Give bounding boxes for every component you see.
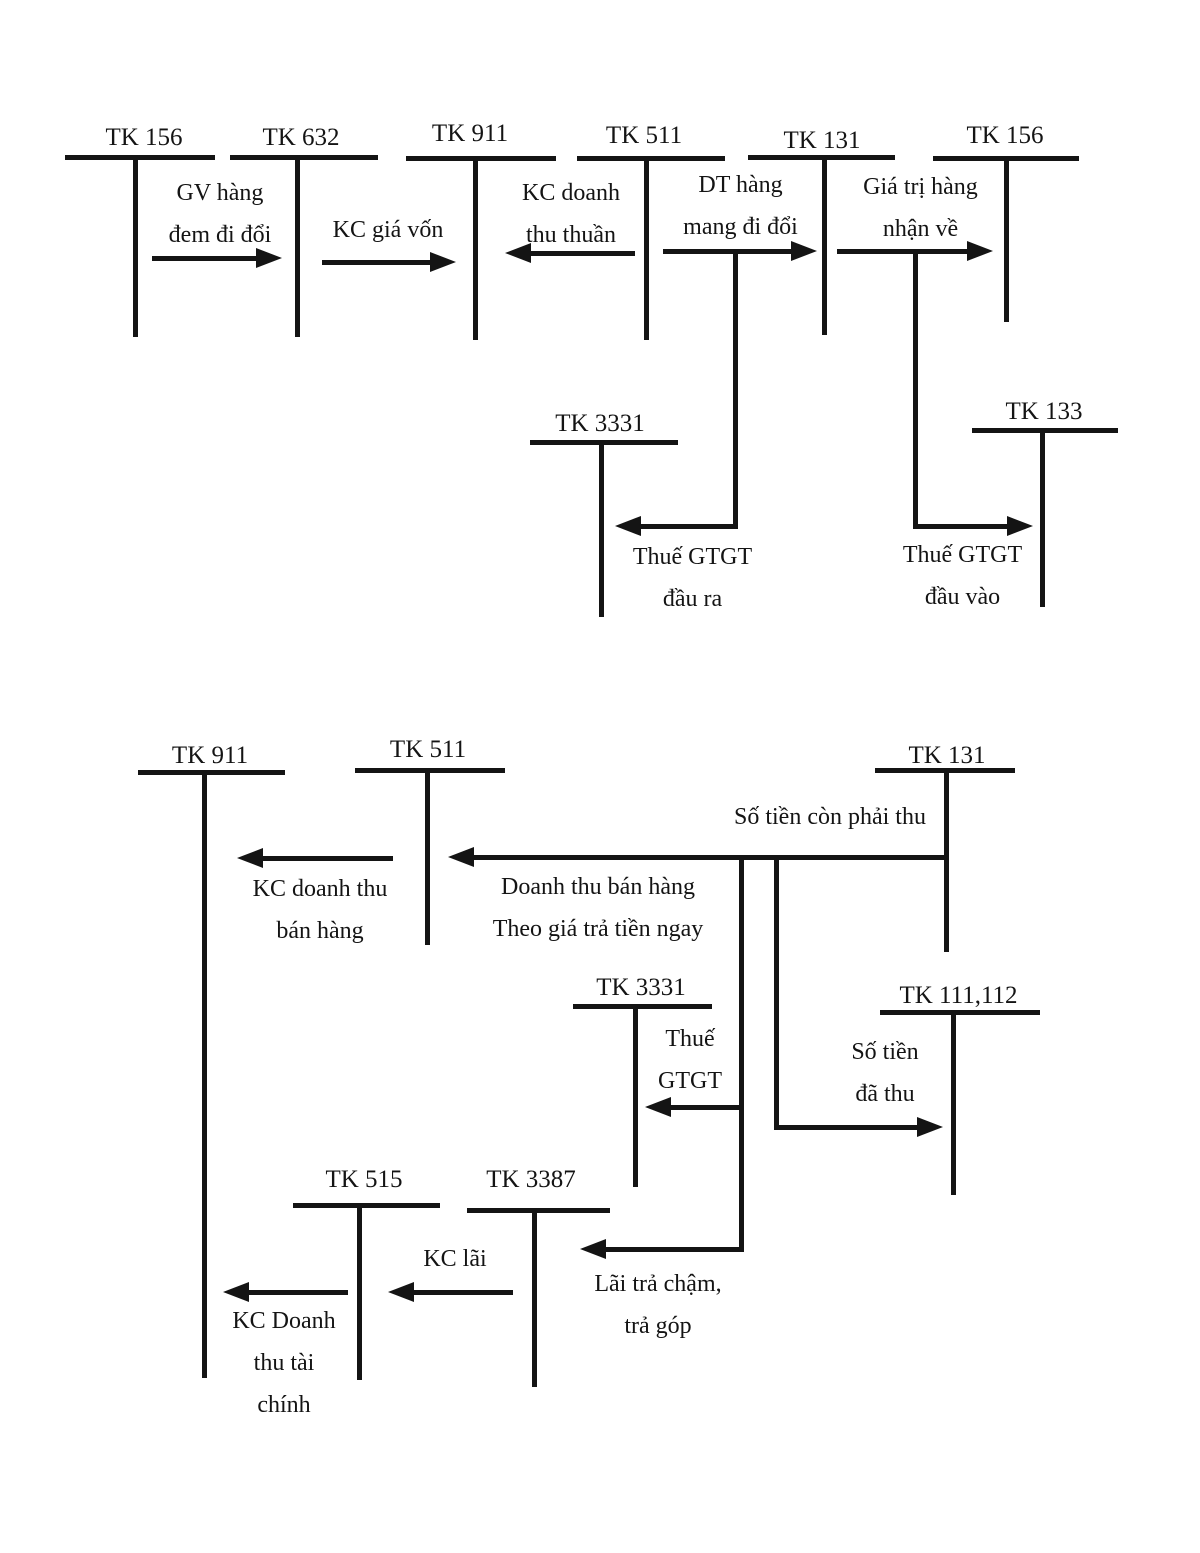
account-label-tk632: TK 632 — [221, 121, 381, 155]
thue-gtgt-dau-vao-arrow-line — [913, 524, 1009, 529]
account-label-tk131: TK 131 — [742, 124, 902, 158]
dt-hang-arrowhead — [791, 241, 817, 261]
kc-gia-von-arrowhead — [430, 252, 456, 272]
gv-hang-arrow-line — [152, 256, 260, 261]
flow-label-gv-hang-dem-di-doi: GV hàng đem đi đổi — [130, 172, 310, 256]
account-label-tk133: TK 133 — [964, 395, 1124, 429]
account-label-tk156-left: TK 156 — [64, 121, 224, 155]
dt-hang-branch-drop — [733, 251, 738, 527]
account-label-tk911-b: TK 911 — [130, 739, 290, 773]
kc-lai-arrow-line — [412, 1290, 513, 1295]
kc-gia-von-arrow-line — [322, 260, 432, 265]
tk511-top-bar — [577, 156, 725, 161]
kc-doanh-thu-tai-chinh-arrowhead — [223, 1282, 249, 1302]
account-label-tk3331-b: TK 3331 — [561, 971, 721, 1005]
flow-label-kc-doanh-thu-ban-hang: KC doanh thu bán hàng — [230, 868, 410, 952]
tk111-112-stem — [951, 1010, 956, 1195]
kc-doanh-thu-ban-hang-arrow-line — [261, 856, 393, 861]
flow-label-gia-tri-hang-nhan-ve: Giá trị hàng nhận về — [828, 166, 1013, 250]
flow-label-dt-hang-mang-di-doi: DT hàng mang đi đổi — [648, 164, 833, 248]
tk3387-stem — [532, 1208, 537, 1387]
so-tien-da-thu-arrow-line — [774, 1125, 919, 1130]
tk3387-top-bar — [467, 1208, 610, 1213]
account-label-tk3331: TK 3331 — [520, 407, 680, 441]
tk511-b-stem — [425, 768, 430, 945]
kc-doanh-thu-tai-chinh-arrow-line — [247, 1290, 348, 1295]
tk3331-top-bar — [530, 440, 678, 445]
kc-doanh-thu-thuan-arrow-line — [529, 251, 635, 256]
flow-label-lai-tra-cham: Lãi trả chậm, trả góp — [548, 1263, 768, 1347]
flow-label-kc-gia-von: KC giá vốn — [293, 209, 483, 251]
flow-label-so-tien-da-thu: Số tiền đã thu — [825, 1031, 945, 1115]
thue-gtgt-b-arrow-line — [669, 1105, 741, 1110]
flow-label-thue-gtgt-dau-ra: Thuế GTGT đầu ra — [600, 536, 785, 620]
thue-gtgt-dau-ra-arrowhead — [615, 516, 641, 536]
tk156-left-top-bar — [65, 155, 215, 160]
doanh-thu-ban-hang-arrow-line — [472, 855, 948, 860]
kc-doanh-thu-ban-hang-arrowhead — [237, 848, 263, 868]
gia-tri-hang-branch-drop — [913, 251, 918, 527]
account-label-tk111-112: TK 111,112 — [876, 979, 1041, 1013]
account-label-tk156-right: TK 156 — [925, 119, 1085, 153]
tk133-top-bar — [972, 428, 1118, 433]
flow-label-so-tien-con-phai-thu: Số tiền còn phải thu — [660, 796, 1000, 838]
tk911-b-stem — [202, 770, 207, 1378]
flow-label-doanh-thu-ban-hang: Doanh thu bán hàng Theo giá trả tiền nga… — [458, 866, 738, 950]
flow-label-kc-doanh-thu-tai-chinh: KC Doanh thu tài chính — [204, 1300, 364, 1426]
tk111-112-top-bar — [880, 1010, 1040, 1015]
account-label-tk511: TK 511 — [564, 119, 724, 153]
gia-tri-hang-arrowhead — [967, 241, 993, 261]
flow-label-thue-gtgt-dau-vao: Thuế GTGT đầu vào — [870, 534, 1055, 618]
flow-label-kc-lai: KC lãi — [395, 1238, 515, 1280]
dt-hang-arrow-line — [663, 249, 793, 254]
tk632-top-bar — [230, 155, 378, 160]
thue-gtgt-dau-vao-arrowhead — [1007, 516, 1033, 536]
doanh-thu-ban-hang-arrowhead — [448, 847, 474, 867]
account-label-tk511-b: TK 511 — [348, 733, 508, 767]
so-tien-da-thu-arrowhead — [917, 1117, 943, 1137]
tk515-top-bar — [293, 1203, 440, 1208]
lai-tra-cham-arrowhead — [580, 1239, 606, 1259]
accounting-t-account-diagram: TK 156 TK 632 TK 911 TK 511 TK 131 TK 15… — [0, 0, 1200, 1553]
tk511-b-top-bar — [355, 768, 505, 773]
thue-gtgt-dau-ra-arrow-line — [639, 524, 738, 529]
kc-doanh-thu-thuan-arrowhead — [505, 243, 531, 263]
account-label-tk911: TK 911 — [390, 117, 550, 151]
kc-lai-arrowhead — [388, 1282, 414, 1302]
flow-label-thue-gtgt-b: Thuế GTGT — [630, 1018, 750, 1102]
account-label-tk515: TK 515 — [284, 1163, 444, 1197]
gia-tri-hang-arrow-line — [837, 249, 969, 254]
main-branch-drop-right — [774, 857, 779, 1130]
tk911-top-bar — [406, 156, 556, 161]
tk911-b-top-bar — [138, 770, 285, 775]
account-label-tk3387: TK 3387 — [451, 1163, 611, 1197]
gv-hang-arrowhead — [256, 248, 282, 268]
lai-tra-cham-arrow-line — [604, 1247, 744, 1252]
thue-gtgt-b-arrowhead — [645, 1097, 671, 1117]
tk3331-b-top-bar — [573, 1004, 712, 1009]
